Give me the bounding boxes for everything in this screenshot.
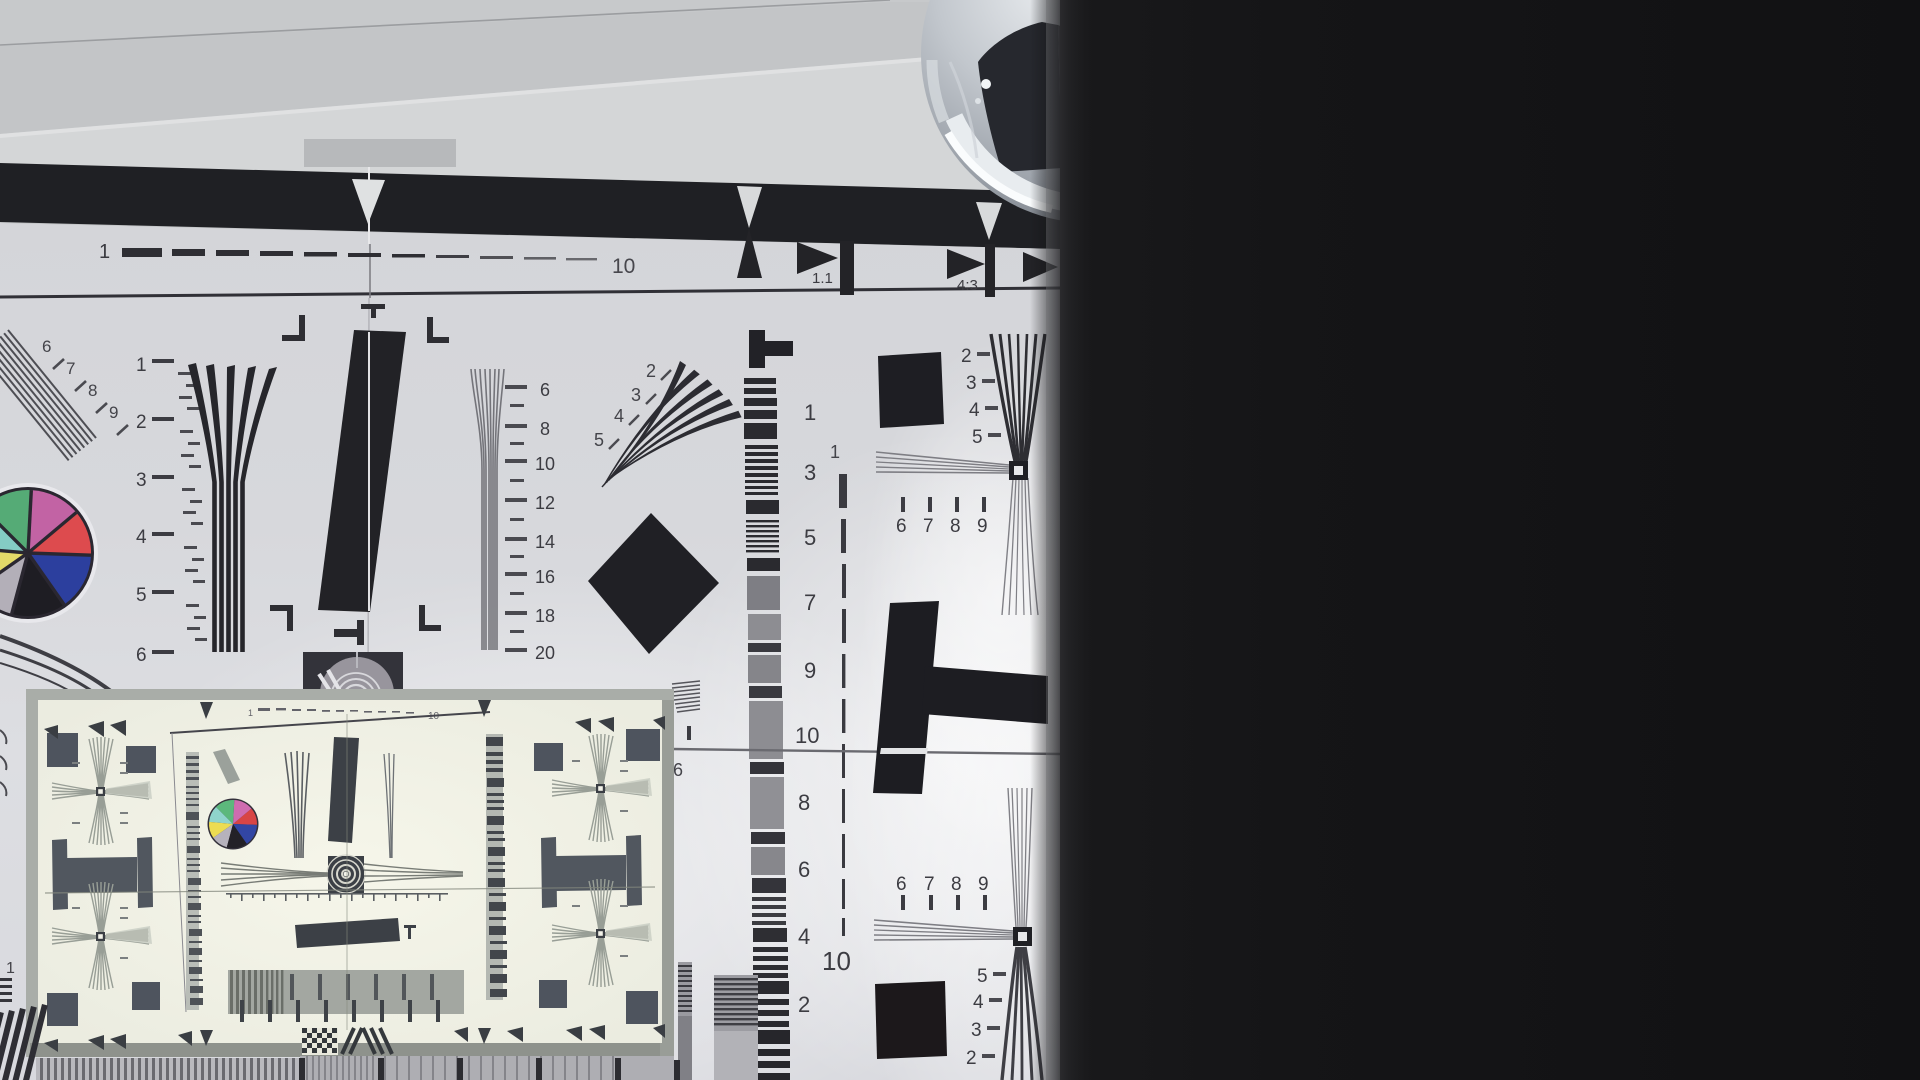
svg-text:1: 1 [136, 355, 147, 376]
svg-text:4: 4 [973, 992, 984, 1013]
svg-text:8: 8 [950, 516, 961, 537]
svg-text:4:3: 4:3 [957, 277, 978, 294]
svg-text:3: 3 [136, 470, 147, 491]
svg-text:5: 5 [977, 966, 988, 987]
svg-text:3: 3 [804, 460, 816, 485]
svg-text:6: 6 [540, 380, 550, 400]
svg-text:10: 10 [612, 255, 635, 278]
svg-text:5: 5 [136, 585, 147, 606]
svg-text:1.1: 1.1 [812, 270, 833, 287]
svg-text:6: 6 [136, 645, 147, 666]
svg-text:6: 6 [42, 337, 51, 356]
svg-text:7: 7 [924, 874, 935, 895]
svg-text:4: 4 [798, 924, 810, 949]
svg-text:2: 2 [961, 346, 972, 367]
svg-text:2: 2 [798, 992, 810, 1017]
svg-text:9: 9 [804, 658, 816, 683]
svg-text:8: 8 [88, 381, 97, 400]
svg-text:14: 14 [535, 532, 555, 552]
svg-text:3: 3 [971, 1020, 982, 1041]
svg-text:12: 12 [535, 493, 555, 513]
svg-text:1: 1 [6, 960, 15, 977]
svg-text:4: 4 [614, 406, 624, 426]
svg-text:1: 1 [804, 400, 816, 425]
svg-text:1: 1 [830, 442, 840, 462]
svg-text:2: 2 [646, 361, 656, 381]
svg-text:10: 10 [535, 454, 555, 474]
svg-text:8: 8 [540, 419, 550, 439]
svg-text:5: 5 [972, 427, 983, 448]
svg-text:6: 6 [798, 857, 810, 882]
svg-text:7: 7 [66, 359, 75, 378]
svg-text:1: 1 [248, 708, 253, 718]
svg-text:9: 9 [977, 516, 988, 537]
svg-text:7: 7 [804, 590, 816, 615]
svg-text:2: 2 [966, 1048, 977, 1069]
svg-text:16: 16 [535, 567, 555, 587]
svg-text:9: 9 [109, 403, 118, 422]
svg-text:6: 6 [896, 874, 907, 895]
svg-text:8: 8 [798, 790, 810, 815]
svg-text:4: 4 [136, 527, 147, 548]
svg-text:6: 6 [896, 516, 907, 537]
svg-text:3: 3 [631, 385, 641, 405]
svg-text:5: 5 [804, 525, 816, 550]
svg-text:6: 6 [673, 760, 683, 780]
svg-text:9: 9 [978, 874, 989, 895]
svg-text:20: 20 [535, 643, 555, 663]
svg-text:4: 4 [969, 400, 980, 421]
svg-text:18: 18 [535, 606, 555, 626]
svg-text:8: 8 [951, 874, 962, 895]
svg-text:10: 10 [822, 946, 851, 976]
svg-text:3: 3 [966, 373, 977, 394]
svg-text:7: 7 [923, 516, 934, 537]
svg-text:2: 2 [136, 412, 147, 433]
svg-text:5: 5 [594, 430, 604, 450]
svg-text:10: 10 [795, 723, 819, 748]
svg-text:1: 1 [99, 241, 110, 263]
